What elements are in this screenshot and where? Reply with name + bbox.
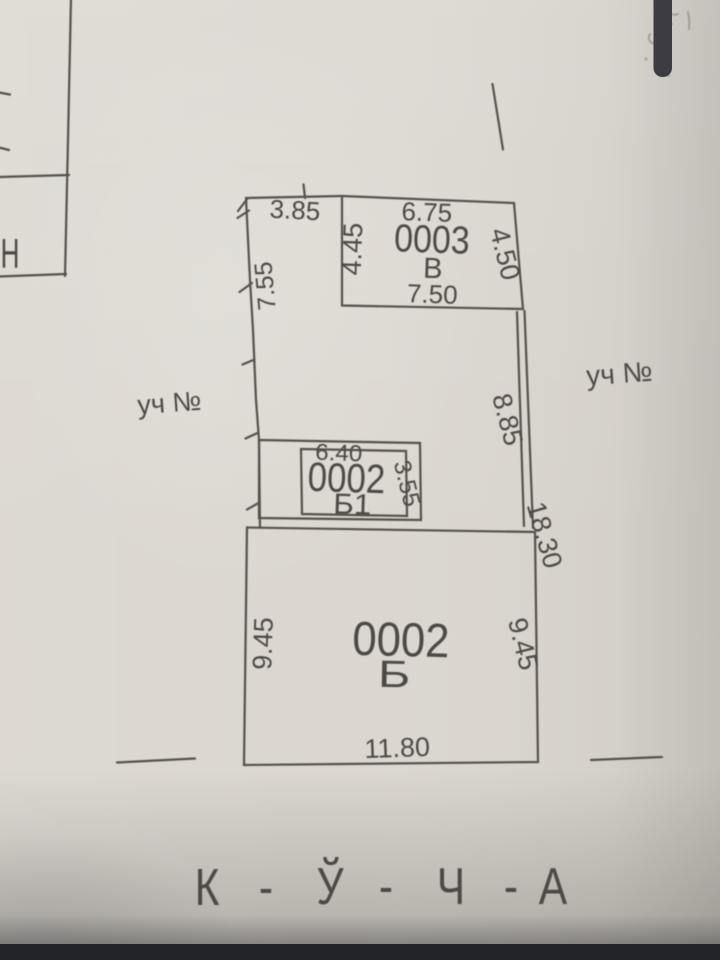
svg-text:9.45: 9.45	[247, 617, 279, 671]
svg-text:3.85: 3.85	[269, 194, 321, 227]
svg-text:Б: Б	[378, 653, 411, 696]
svg-text:-: -	[259, 859, 273, 917]
svg-text:-: -	[504, 858, 518, 916]
svg-text:Н: Н	[1, 231, 20, 278]
svg-text:уч №: уч №	[585, 356, 653, 392]
svg-text:7.55: 7.55	[249, 261, 281, 312]
svg-text:Ч: Ч	[437, 858, 465, 916]
svg-text:Ў: Ў	[316, 856, 344, 916]
svg-text:Б1: Б1	[333, 488, 372, 521]
svg-text:К: К	[195, 859, 220, 917]
svg-text:-: -	[379, 858, 393, 916]
svg-text:А: А	[539, 858, 568, 916]
svg-text:4.45: 4.45	[337, 222, 369, 276]
svg-text:11.80: 11.80	[364, 732, 431, 764]
svg-text:уч №: уч №	[136, 386, 202, 420]
svg-text:7.50: 7.50	[407, 278, 459, 310]
